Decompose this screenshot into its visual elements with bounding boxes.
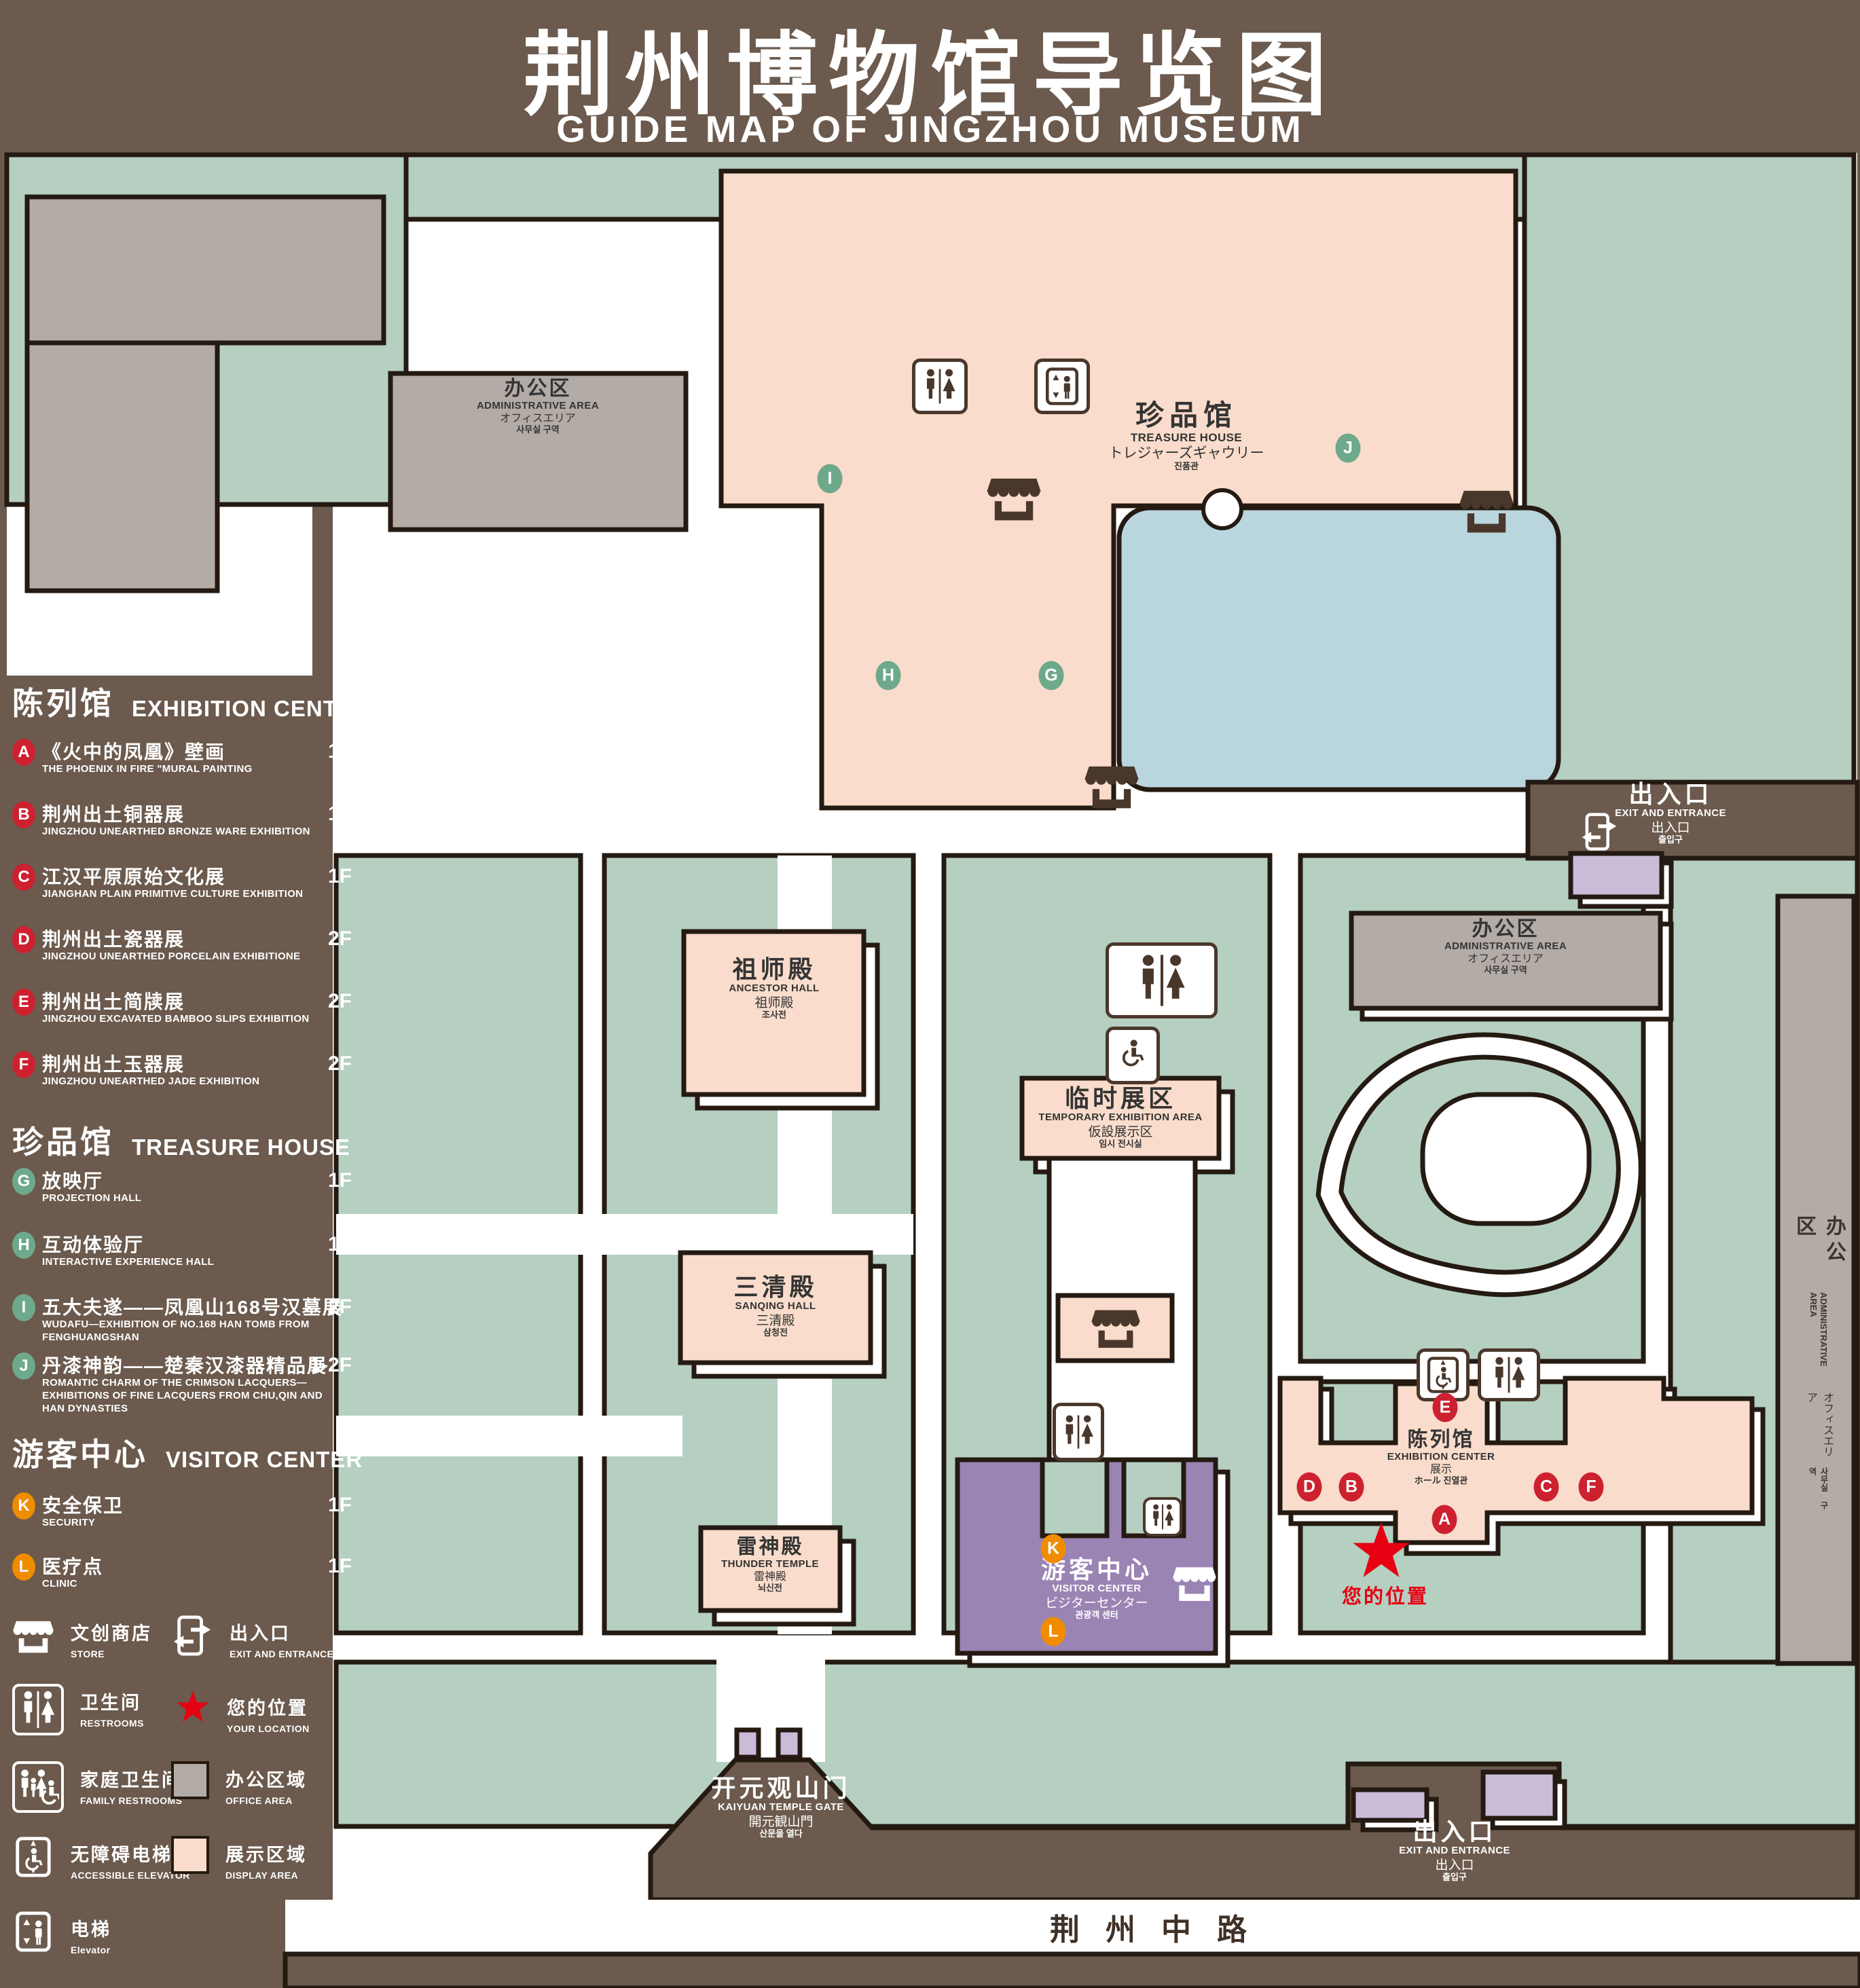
badge-k: K [12,1492,35,1520]
legend-item-h: H 互动体验厅 INTERACTIVE EXPERIENCE HALL 1F [12,1230,352,1287]
store-icon [1459,482,1514,538]
ancestor-hall-label: 祖师殿 ANCESTOR HALL 祖师殿 조사전 [729,956,819,1020]
badge-j: J [12,1352,35,1380]
map-marker-g: G [1039,661,1064,691]
exit-ne-label: 出入口 EXIT AND ENTRANCE 出入口 출입구 [1615,781,1726,845]
map-marker-f: F [1579,1473,1604,1502]
store-icon [12,1615,54,1657]
your-location-text: 您的位置 [1342,1581,1429,1609]
admin-nw-label: 办公区 ADMINISTRATIVE AREA オフィスエリア 사무실 구역 [477,378,599,435]
legend-item-j: J 丹漆神韵——楚秦汉漆器精品展 ROMANTIC CHARM OF THE C… [12,1351,352,1408]
map-marker-d: D [1297,1473,1322,1502]
display-area-swatch [171,1836,209,1874]
legend-item-d: D 荆州出土瓷器展 JINGZHOU UNEARTHED PORCELAIN E… [12,925,352,982]
restrooms-icon [1053,1403,1104,1461]
gate-label: 开元观山门 KAIYUAN TEMPLE GATE 開元観山門 산문을 열다 [711,1775,850,1839]
admin-tower-label: 办公区 ADMINISTRATIVE AREA オフィスエリア 사무실 구역 [1789,1215,1848,1514]
accessible-elevator-icon [12,1836,54,1878]
badge-i: I [12,1294,35,1321]
map-marker-c: C [1534,1473,1559,1502]
gate-building-right [778,1730,800,1757]
elevator-icon [12,1911,54,1953]
restrooms-icon [912,358,968,414]
road-label: 荆州中路 [1050,1905,1273,1949]
green-ne-column [1525,155,1854,786]
legend-item-f: F 荆州出土玉器展 JINGZHOU UNEARTHED JADE EXHIBI… [12,1050,352,1107]
exit-s-building-right [1483,1772,1555,1818]
legend-your-location: 您的位置 YOUR LOCATION [175,1689,310,1734]
map-marker-l: L [1041,1617,1066,1646]
guide-map-poster: { "title": {"cn": "荆州博物馆导览图", "en": "GUI… [0,0,1860,1988]
legend-item-a: A 《火中的凤凰》壁画 THE PHOENIX IN FIRE "MURAL P… [12,737,352,794]
map-marker-h: H [876,661,901,691]
map-marker-a: A [1432,1505,1457,1534]
badge-b: B [12,801,35,828]
exhibition-center-label: 陈列馆 EXHIBITION CENTER 展示 ホール 진열관 [1387,1429,1495,1486]
legend-elevator: 电梯 Elevator [12,1911,111,1955]
legend-item-e: E 荆州出土简牍展 JINGZHOU EXCAVATED BAMBOO SLIP… [12,987,352,1044]
restrooms-icon [1478,1348,1540,1401]
legend-item-g: G 放映厅 PROJECTION HALL 1F [12,1166,352,1223]
gate-path [716,1657,825,1762]
exit-s-building-left [1353,1790,1427,1820]
store-icon [1091,1302,1141,1352]
elevator-icon [1034,358,1090,414]
family-restroom-icon [12,1761,64,1813]
admin-east-label: 办公区 ADMINISTRATIVE AREA オフィスエリア 사무실 구역 [1444,918,1567,976]
badge-d: D [12,926,35,953]
exit-icon [1580,812,1619,851]
legend-item-l: L 医疗点 CLINIC 1F [12,1552,352,1609]
visitor-center-label: 游客中心 VISITOR CENTER ビジターセンター 관광객 센터 [1041,1556,1152,1621]
restrooms-icon [1106,942,1218,1018]
legend-restrooms: 卫生间 RESTROOMS [12,1684,144,1735]
legend-header-visitor: 游客中心 VISITOR CENTER [12,1430,363,1475]
map-marker-e: E [1433,1393,1458,1422]
legend-exit: 出入口 EXIT AND ENTRANCE [171,1615,333,1659]
legend-item-b: B 荆州出土铜器展 JINGZHOU UNEARTHED BRONZE WARE… [12,800,352,857]
street [285,1954,1860,1988]
legend-item-k: K 安全保卫 SECURITY 1F [12,1491,352,1548]
legend-item-c: C 江汉平原原始文化展 JIANGHAN PLAIN PRIMITIVE CUL… [12,862,352,919]
legend-header-exhibition: 陈列馆 EXHIBITION CENTER [12,679,370,724]
legend-item-i: I 五大夫遂——凤凰山168号汉墓展 WUDAFU—EXHIBITION OF … [12,1293,352,1350]
gate-building-left [737,1730,759,1757]
store-icon [986,470,1042,526]
green-south-band [336,1662,1857,1826]
office-area-swatch [171,1761,209,1799]
badge-g: G [12,1168,35,1195]
map-marker-b: B [1339,1473,1364,1502]
badge-e: E [12,989,35,1016]
legend-family-restrooms: 家庭卫生间 FAMILY RESTROOMS [12,1761,182,1813]
exit-s-label: 出入口 EXIT AND ENTRANCE 出入口 출입구 [1399,1818,1510,1883]
map-marker-j: J [1336,434,1361,463]
store-icon [1084,758,1139,813]
legend-accessible-elevator: 无障碍电梯 ACCESSIBLE ELEVATOR [12,1836,190,1881]
your-location-star-icon [175,1689,211,1725]
map-marker-k: K [1041,1534,1066,1564]
restrooms-icon [1143,1497,1182,1536]
badge-h: H [12,1232,35,1259]
exit-ne-building [1571,853,1662,897]
legend-store: 文创商店 STORE [12,1615,152,1659]
legend-office-area: 办公区域 OFFICE AREA [171,1761,307,1806]
thunder-temple-label: 雷神殿 THUNDER TEMPLE 雷神殿 뇌신전 [721,1536,819,1594]
sanqing-hall-label: 三清殿 SANQING HALL 三清殿 삼청전 [733,1274,817,1338]
store-icon [1172,1560,1217,1605]
exit-icon [171,1615,213,1657]
restrooms-icon [12,1684,64,1735]
temporary-exhibition-label: 临时展区 TEMPORARY EXHIBITION AREA 仮設展示区 임시 … [1038,1085,1202,1149]
your-location-star-icon [1350,1520,1412,1582]
badge-l: L [12,1553,35,1581]
badge-c: C [12,864,35,891]
legend-display-area: 展示区域 DISPLAY AREA [171,1836,307,1881]
family-restroom-icon [1106,1027,1160,1084]
badge-f: F [12,1051,35,1078]
treasure-house-label: 珍品馆 TREASURE HOUSE トレジャーズギャウリー 진품관 [1109,399,1264,471]
badge-a: A [12,739,35,766]
map-marker-i: I [818,464,843,494]
pond [1119,508,1558,790]
legend-header-treasure: 珍品馆 TREASURE HOUSE [12,1118,350,1162]
